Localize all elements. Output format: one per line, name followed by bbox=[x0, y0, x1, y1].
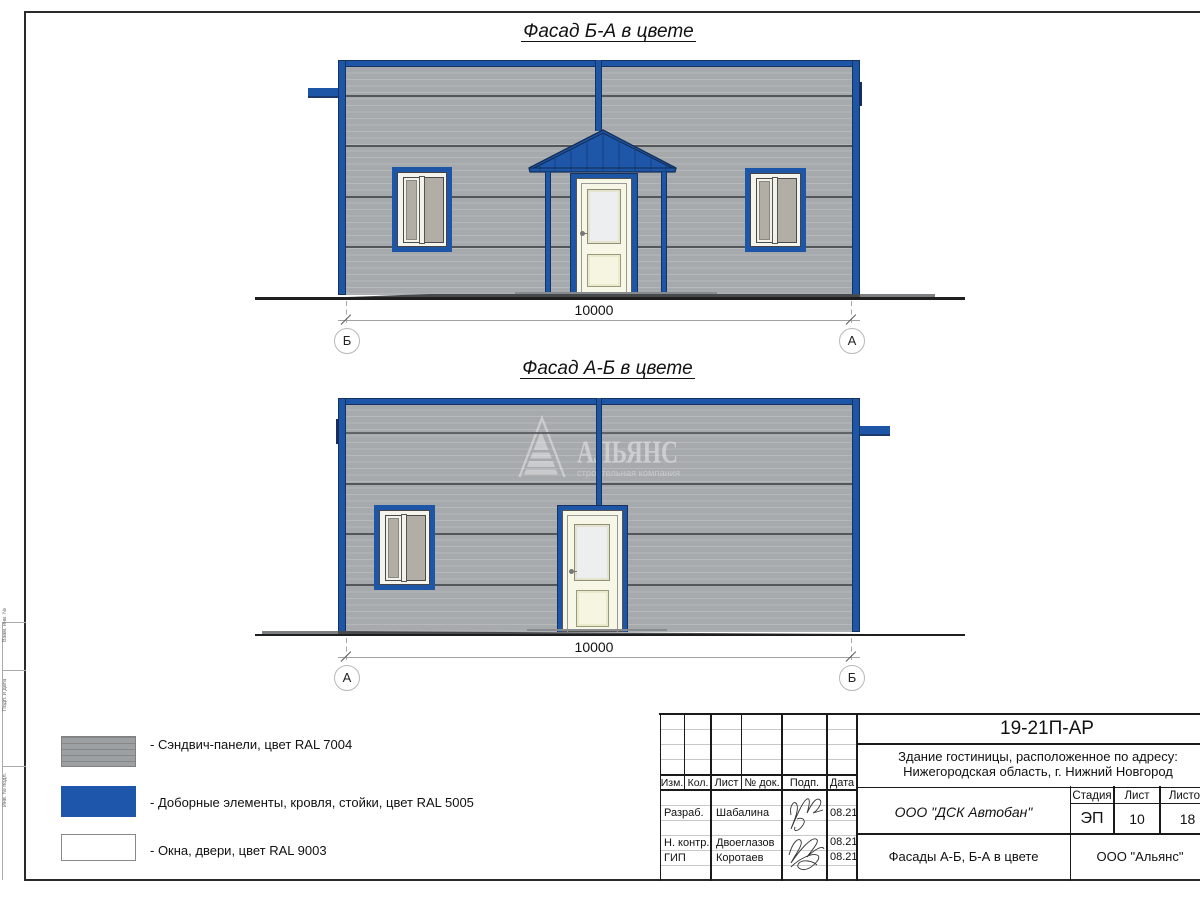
svg-text:строительная компания: строительная компания bbox=[577, 468, 680, 479]
svg-text:АЛЬЯНС: АЛЬЯНС bbox=[577, 434, 678, 470]
